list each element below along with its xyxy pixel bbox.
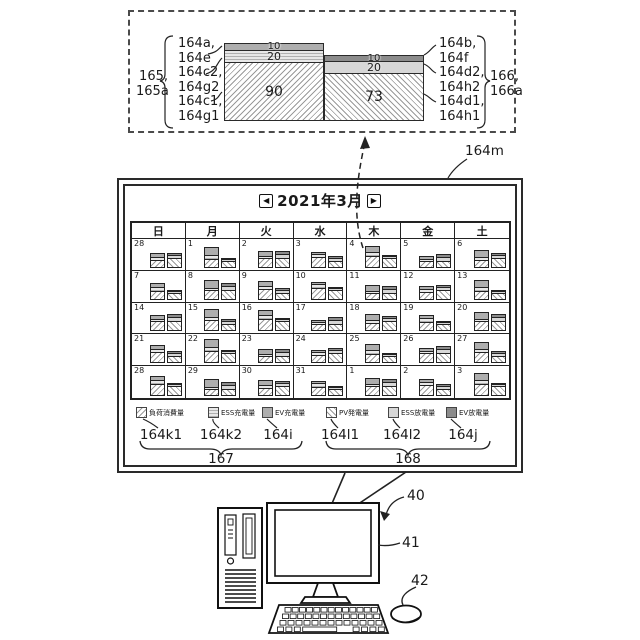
keyboard-key — [312, 621, 318, 626]
calendar-day-cell[interactable]: 14 — [132, 303, 186, 335]
mini-segment — [167, 293, 182, 300]
day-number: 13 — [457, 272, 467, 280]
mini-bar — [311, 320, 326, 331]
keyboard — [269, 605, 388, 633]
segment-pv-generation: 73 — [324, 73, 424, 121]
mini-segment — [150, 291, 165, 300]
day-number: 7 — [134, 272, 139, 280]
segment-load-consumption: 90 — [224, 62, 324, 121]
mini-bar — [382, 353, 397, 363]
mini-bar — [275, 251, 290, 268]
day-mini-chart — [258, 380, 290, 396]
calendar-day-cell[interactable]: 15 — [186, 303, 240, 335]
mini-bar — [275, 318, 290, 331]
calendar-day-cell[interactable]: 21 — [132, 334, 186, 366]
mini-segment — [221, 324, 236, 331]
legend-label: ESS充電量 — [221, 408, 255, 418]
legend-item-load: 負荷消費量 — [136, 407, 184, 418]
arrowhead-up-icon — [360, 136, 370, 149]
day-mini-chart — [365, 246, 397, 268]
mini-bar — [258, 251, 273, 268]
weekday-header-5: 金 — [401, 223, 455, 239]
calendar-header: ◀ 2021年3月 ▶ — [117, 190, 523, 211]
mini-bar — [258, 281, 273, 300]
day-number: 8 — [188, 272, 193, 280]
leader-42 — [402, 587, 416, 605]
keyboard-key — [362, 627, 368, 632]
day-mini-chart — [419, 315, 451, 331]
ref-line: 166, — [490, 69, 519, 84]
mini-bar — [258, 380, 273, 396]
keyboard-key — [378, 627, 384, 632]
mini-bar — [419, 379, 434, 396]
legend-item-ev-discharge: EV放電量 — [446, 407, 489, 418]
day-mini-chart — [365, 344, 397, 363]
day-number: 2 — [403, 367, 408, 375]
mini-segment — [436, 353, 451, 363]
keyboard-key — [374, 614, 380, 619]
mini-segment — [221, 261, 236, 268]
calendar-day-cell[interactable]: 19 — [401, 303, 455, 335]
leader-41 — [378, 543, 400, 546]
legend-ref-164j: 164j — [448, 427, 478, 443]
calendar-title: 2021年3月 — [277, 190, 363, 211]
weekday-header-4: 木 — [347, 223, 401, 239]
calendar-day-cell[interactable]: 1 — [186, 239, 240, 271]
day-number: 16 — [242, 304, 252, 312]
tower-power-led-icon — [228, 558, 234, 564]
mini-bar — [221, 258, 236, 268]
calendar-day-cell[interactable]: 2 — [401, 366, 455, 398]
day-number: 1 — [349, 367, 354, 375]
mini-bar — [491, 314, 506, 331]
mini-segment — [328, 261, 343, 268]
mini-segment — [419, 261, 434, 268]
mini-segment — [419, 385, 434, 396]
mini-segment — [258, 388, 273, 396]
day-number: 26 — [403, 335, 413, 343]
ref-label-164d2-164h2: 164d2, 164h2 — [439, 66, 484, 95]
legend-swatch-hatch-forward-icon — [136, 407, 147, 418]
keyboard-key — [313, 614, 319, 619]
calendar-day-cell[interactable]: 7 — [132, 271, 186, 303]
calendar-day-cell[interactable]: 27 — [455, 334, 509, 366]
mini-bar — [491, 253, 506, 268]
mini-segment — [221, 290, 236, 300]
day-mini-chart — [258, 310, 290, 331]
mini-segment — [275, 293, 290, 300]
tower-case — [218, 508, 262, 608]
calendar-day-cell[interactable]: 4 — [347, 239, 401, 271]
legend-swatch-stripe-icon — [208, 407, 219, 418]
mouse-contour — [392, 617, 420, 622]
mini-segment — [311, 257, 326, 268]
calendar-day-cell[interactable]: 17 — [294, 303, 348, 335]
mini-bar — [204, 247, 219, 268]
mini-bar — [491, 351, 506, 363]
calendar-day-cell[interactable]: 12 — [401, 271, 455, 303]
keyboard-key — [321, 614, 327, 619]
calendar-day-cell[interactable]: 3 — [455, 366, 509, 398]
mini-segment — [258, 356, 273, 363]
calendar-day-cell[interactable]: 22 — [186, 334, 240, 366]
mouse — [391, 606, 421, 623]
ref-line: 164e — [178, 51, 211, 66]
keyboard-key — [321, 608, 327, 613]
mini-segment — [311, 288, 326, 300]
mini-bar — [167, 351, 182, 363]
mini-bar — [382, 255, 397, 268]
mini-bar — [436, 285, 451, 300]
mini-segment — [474, 260, 489, 268]
calendar-day-cell[interactable]: 16 — [240, 303, 294, 335]
calendar-day-cell[interactable]: 26 — [401, 334, 455, 366]
legend-ref-164i: 164i — [263, 427, 293, 443]
calendar-day-cell[interactable]: 2 — [240, 239, 294, 271]
mini-segment — [365, 386, 380, 396]
mini-segment — [382, 258, 397, 268]
day-mini-chart — [311, 282, 343, 300]
mini-segment — [167, 386, 182, 396]
calendar-day-cell[interactable]: 24 — [294, 334, 348, 366]
mini-segment — [436, 261, 451, 268]
calendar-day-cell[interactable]: 11 — [347, 271, 401, 303]
monitor-ref-label: 41 — [402, 535, 420, 551]
calendar-day-cell[interactable]: 5 — [401, 239, 455, 271]
mini-bar — [167, 383, 182, 396]
mini-segment — [419, 292, 434, 300]
keyboard-key — [370, 627, 376, 632]
day-mini-chart — [419, 285, 451, 300]
leader-40 — [386, 497, 404, 515]
calendar-day-cell[interactable]: 10 — [294, 271, 348, 303]
legend-item-ess-discharge: ESS放電量 — [388, 407, 435, 418]
calendar-day-cell[interactable]: 28 — [132, 366, 186, 398]
day-mini-chart — [204, 280, 236, 300]
screen-ref-label: 164m — [465, 143, 504, 159]
mini-segment — [275, 386, 290, 396]
keyboard-key — [285, 608, 291, 613]
ref-line: 164c1, — [178, 94, 222, 109]
keyboard-key — [290, 614, 296, 619]
day-number: 14 — [134, 304, 144, 312]
calendar-day-cell[interactable]: 6 — [455, 239, 509, 271]
mini-segment — [436, 290, 451, 300]
keyboard-key — [350, 608, 356, 613]
day-mini-chart — [419, 254, 451, 268]
ref-line: 166a — [490, 84, 523, 99]
legend-label: EV充電量 — [275, 408, 305, 418]
tower-bay-lines — [228, 530, 233, 538]
day-number: 9 — [242, 272, 247, 280]
mini-segment — [491, 321, 506, 331]
calendar-day-cell[interactable]: 8 — [186, 271, 240, 303]
legend-label: PV発電量 — [339, 408, 369, 418]
keyboard-key — [364, 608, 370, 613]
tower-button — [228, 519, 233, 525]
day-mini-chart — [204, 379, 236, 396]
day-number: 11 — [349, 272, 359, 280]
mini-bar — [491, 383, 506, 396]
calendar-day-cell[interactable]: 3 — [294, 239, 348, 271]
calendar-day-cell[interactable]: 18 — [347, 303, 401, 335]
mini-bar — [474, 342, 489, 363]
day-number: 19 — [403, 304, 413, 312]
mini-bar — [275, 381, 290, 396]
day-mini-chart — [150, 345, 182, 363]
mini-bar — [311, 252, 326, 268]
day-mini-chart — [204, 309, 236, 331]
day-mini-chart — [311, 348, 343, 363]
keyboard-key — [280, 621, 286, 626]
day-mini-chart — [365, 378, 397, 396]
mini-segment — [204, 351, 219, 363]
tower-bay-left — [225, 515, 236, 555]
day-number: 21 — [134, 335, 144, 343]
weekday-header-6: 土 — [455, 223, 509, 239]
mini-segment — [275, 258, 290, 268]
prev-month-button[interactable]: ◀ — [259, 194, 273, 208]
ref-label-164b-164f: 164b, 164f — [439, 37, 476, 66]
mini-segment — [365, 323, 380, 331]
calendar-day-cell[interactable]: 25 — [347, 334, 401, 366]
mini-bar — [204, 339, 219, 363]
legend-swatch-gray-light-icon — [388, 407, 399, 418]
mini-segment — [150, 260, 165, 268]
mini-bar — [204, 379, 219, 396]
day-number: 28 — [134, 240, 144, 248]
keyboard-key — [278, 627, 284, 632]
mini-bar — [221, 350, 236, 363]
ref-line: 164a, — [178, 36, 215, 51]
mini-bar — [474, 280, 489, 300]
mini-segment — [221, 389, 236, 396]
mini-segment — [382, 321, 397, 331]
legend-ref-164l1: 164l1 — [321, 427, 359, 443]
mini-bar — [311, 350, 326, 363]
day-mini-chart — [311, 252, 343, 268]
mini-segment — [204, 259, 219, 268]
day-number: 3 — [457, 367, 462, 375]
tail-left-line — [322, 473, 345, 527]
mini-segment — [258, 319, 273, 331]
ref-line: 164d2, — [439, 65, 484, 80]
mini-segment — [491, 386, 506, 396]
mini-segment — [150, 352, 165, 363]
legend-item-pv: PV発電量 — [326, 407, 369, 418]
mini-segment — [328, 290, 343, 300]
day-number: 25 — [349, 335, 359, 343]
day-mini-chart — [258, 251, 290, 268]
keyboard-key — [353, 627, 359, 632]
mini-bar — [204, 309, 219, 331]
mini-segment — [221, 353, 236, 363]
keyboard-key — [307, 608, 313, 613]
mini-bar — [436, 254, 451, 268]
day-number: 22 — [188, 335, 198, 343]
weekday-header-2: 火 — [240, 223, 294, 239]
day-number: 6 — [457, 240, 462, 248]
mini-bar — [275, 288, 290, 300]
calendar-day-cell[interactable]: 20 — [455, 303, 509, 335]
calendar-day-cell[interactable]: 23 — [240, 334, 294, 366]
keyboard-key — [299, 608, 305, 613]
keyboard-key — [288, 621, 294, 626]
day-number: 1 — [188, 240, 193, 248]
calendar-day-cell[interactable]: 9 — [240, 271, 294, 303]
day-number: 5 — [403, 240, 408, 248]
keyboard-key — [360, 621, 366, 626]
mini-segment — [365, 293, 380, 300]
legend-label: ESS放電量 — [401, 408, 435, 418]
keyboard-keys — [278, 608, 385, 632]
day-mini-chart — [419, 346, 451, 363]
day-mini-chart — [474, 250, 506, 268]
mini-bar — [436, 384, 451, 396]
mini-segment — [419, 353, 434, 363]
calendar-day-cell[interactable]: 29 — [186, 366, 240, 398]
mini-segment — [167, 258, 182, 268]
calendar-day-cell[interactable]: 13 — [455, 271, 509, 303]
mini-bar — [204, 280, 219, 300]
mini-bar — [167, 314, 182, 331]
patent-figure-page: { "detail_inset": { "left_group_label": … — [0, 0, 640, 640]
keyboard-key — [292, 608, 298, 613]
ref-line: 164d1, — [439, 94, 484, 109]
day-number: 24 — [296, 335, 306, 343]
legend-item-ev-charge: EV充電量 — [262, 407, 305, 418]
screen-callout-tail — [322, 472, 406, 527]
mini-segment — [436, 389, 451, 396]
mini-bar — [382, 316, 397, 331]
calendar-day-cell[interactable]: 1 — [347, 366, 401, 398]
day-mini-chart — [311, 317, 343, 331]
mini-bar — [328, 386, 343, 396]
mini-bar — [167, 290, 182, 300]
mini-segment — [491, 258, 506, 268]
day-number: 3 — [296, 240, 301, 248]
day-number: 12 — [403, 272, 413, 280]
monitor-stand — [313, 583, 338, 597]
day-mini-chart — [474, 312, 506, 331]
mini-segment — [275, 356, 290, 363]
weekday-header-3: 水 — [294, 223, 348, 239]
mini-bar — [419, 348, 434, 363]
keyboard-key — [344, 621, 350, 626]
day-number: 31 — [296, 367, 306, 375]
computer-illustration — [218, 503, 421, 633]
day-mini-chart — [365, 314, 397, 331]
mini-bar — [221, 319, 236, 331]
ref-line: 164f — [439, 51, 468, 66]
mini-bar — [365, 378, 380, 396]
keyboard-key — [283, 614, 289, 619]
legend-ref-164l2: 164l2 — [383, 427, 421, 443]
mini-segment — [474, 384, 489, 396]
mini-bar — [436, 321, 451, 331]
keyboard-key — [286, 627, 292, 632]
monitor-stand-base — [301, 597, 350, 603]
arrowhead-40-icon — [380, 511, 390, 521]
segment-value: 20 — [367, 62, 381, 73]
legend-ref-164k2: 164k2 — [200, 427, 242, 443]
ref-line: 164c2, — [178, 65, 222, 80]
mini-segment — [491, 293, 506, 300]
day-number: 23 — [242, 335, 252, 343]
tower-bay-right — [243, 514, 255, 558]
mini-bar — [328, 317, 343, 331]
ref-line: 164h1 — [439, 109, 480, 124]
legend-swatch-gray-dark-icon — [446, 407, 457, 418]
keyboard-key — [304, 621, 310, 626]
keyboard-key — [357, 608, 363, 613]
keyboard-key — [314, 608, 320, 613]
day-mini-chart — [204, 247, 236, 268]
mini-bar — [311, 381, 326, 396]
next-month-button[interactable]: ▶ — [367, 194, 381, 208]
day-number: 27 — [457, 335, 467, 343]
day-number: 20 — [457, 304, 467, 312]
keyboard-key — [328, 621, 334, 626]
day-mini-chart — [150, 283, 182, 300]
day-number: 30 — [242, 367, 252, 375]
mini-segment — [474, 321, 489, 331]
mini-segment — [382, 293, 397, 300]
calendar-day-cell[interactable]: 30 — [240, 366, 294, 398]
ref-line: 164h2 — [439, 80, 480, 95]
mini-bar — [258, 310, 273, 331]
mini-bar — [258, 349, 273, 363]
mini-bar — [150, 283, 165, 300]
mini-bar — [328, 287, 343, 300]
mini-bar — [221, 283, 236, 300]
day-mini-chart — [311, 381, 343, 396]
calendar-day-cell[interactable]: 31 — [294, 366, 348, 398]
mouse-ref-label: 42 — [411, 573, 429, 589]
mini-segment — [436, 324, 451, 331]
mini-bar — [436, 346, 451, 363]
legend-item-ess-charge: ESS充電量 — [208, 407, 255, 418]
tail-right-line — [324, 472, 406, 527]
mini-bar — [365, 314, 380, 331]
mini-segment — [474, 291, 489, 300]
mini-bar — [167, 253, 182, 268]
day-mini-chart — [150, 253, 182, 268]
mini-segment — [204, 290, 219, 300]
mini-segment — [204, 389, 219, 396]
mini-bar — [150, 253, 165, 268]
mini-segment — [382, 386, 397, 396]
keyboard-key — [343, 614, 349, 619]
ref-line: 164g2 — [178, 80, 219, 95]
mini-segment — [328, 389, 343, 396]
keyboard-key — [320, 621, 326, 626]
mini-bar — [491, 290, 506, 300]
ref-label-164c2-164g2: 164c2, 164g2 — [178, 66, 222, 95]
keyboard-key — [368, 621, 374, 626]
mini-segment — [382, 356, 397, 363]
day-mini-chart — [258, 349, 290, 363]
mini-segment — [311, 387, 326, 396]
keyboard-key — [296, 621, 302, 626]
mini-segment — [150, 321, 165, 331]
day-number: 10 — [296, 272, 306, 280]
calendar-day-cell[interactable]: 28 — [132, 239, 186, 271]
keyboard-key — [305, 614, 311, 619]
mini-segment — [328, 324, 343, 331]
mini-segment — [474, 352, 489, 363]
calendar-grid: 日月火水木金土281234567891011121314151617181920… — [130, 221, 511, 400]
